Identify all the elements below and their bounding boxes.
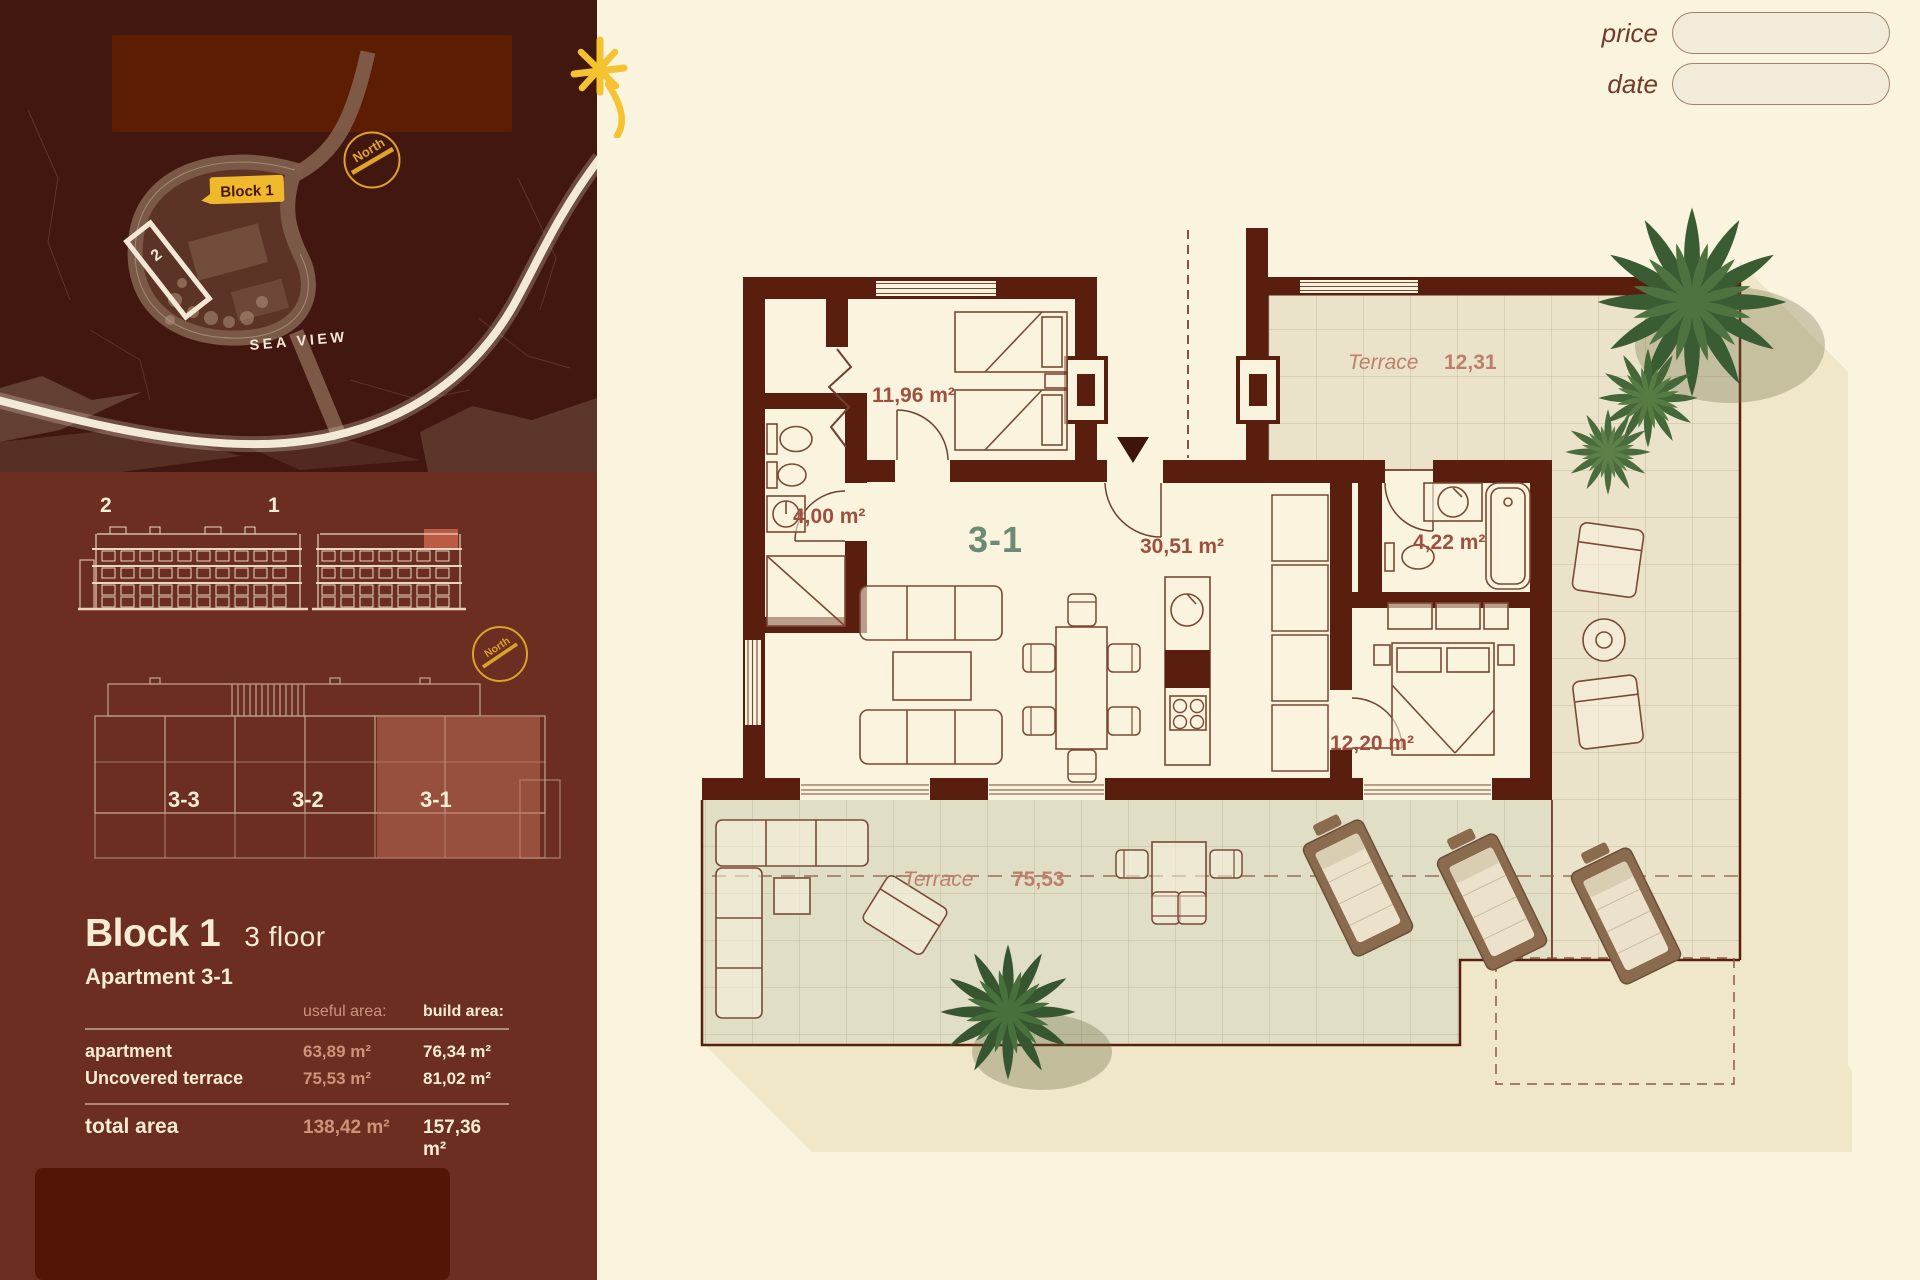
table-row: Uncovered terrace 75,53 m² 81,02 m²: [85, 1065, 509, 1092]
total-row: total area 138,42 m² 157,36 m²: [85, 1103, 509, 1161]
door-bedroom1: [897, 410, 948, 460]
building-2-elevation: [78, 527, 308, 609]
row-name: Uncovered terrace: [85, 1068, 303, 1089]
entrance-arrow-icon: [1117, 437, 1149, 463]
sliding-door: [1364, 781, 1491, 796]
terrace-top-area: 12,31: [1444, 351, 1497, 374]
door-entry: [1105, 483, 1161, 537]
window: [745, 640, 761, 725]
total-name: total area: [85, 1115, 303, 1139]
bedroom2-area-label: 12,20 m²: [1330, 732, 1414, 755]
elevation-left-label: 2: [100, 494, 112, 517]
window: [1300, 280, 1418, 293]
block-1-badge: Block 1: [201, 175, 285, 205]
row-useful-value: 63,89 m²: [303, 1042, 423, 1062]
block-title: Block 1: [85, 912, 220, 956]
row-name: apartment: [85, 1041, 303, 1062]
living-room-furniture: [860, 586, 1140, 782]
logo-placeholder: [112, 35, 512, 132]
bedroom1-area-label: 11,96 m²: [872, 384, 955, 407]
area-table-header: useful area: build area:: [85, 1003, 509, 1028]
sliding-door: [801, 781, 929, 796]
north-compass-overview: North: [473, 627, 527, 681]
living-area-label: 30,51 m²: [1140, 535, 1224, 558]
sidebar: 2 Block 1 North SEA VIEW: [0, 0, 597, 1280]
window: [876, 281, 996, 296]
overview-unit-3-2: 3-2: [292, 787, 324, 812]
total-useful-value: 138,42 m²: [303, 1117, 423, 1139]
row-build-value: 76,34 m²: [423, 1042, 509, 1062]
unit-3-1-highlight: [377, 716, 540, 858]
apartment-info: Block 1 3 floor Apartment 3-1 useful are…: [85, 912, 511, 1161]
block-1-badge-label: Block 1: [220, 182, 274, 201]
title-row: Block 1 3 floor: [85, 912, 511, 956]
unit-number-label: 3-1: [968, 519, 1023, 560]
row-build-value: 81,02 m²: [423, 1069, 509, 1089]
area-table-body: apartment 63,89 m² 76,34 m² Uncovered te…: [85, 1028, 509, 1103]
bedroom1-furniture: [955, 312, 1067, 450]
bathroom2-area-label: 4,22 m²: [1413, 531, 1485, 554]
table-row: apartment 63,89 m² 76,34 m²: [85, 1038, 509, 1065]
decorative-star-icon: [556, 26, 656, 138]
terrace-top-name: Terrace: [1348, 351, 1418, 374]
apartment-label: Apartment 3-1: [85, 964, 511, 990]
useful-area-header: useful area:: [303, 1003, 423, 1021]
elevations-and-overview: 2 1 North: [0, 472, 597, 868]
sliding-door: [989, 781, 1104, 796]
kitchen: [1165, 577, 1210, 765]
overview-unit-3-3: 3-3: [168, 787, 200, 812]
floor-label: 3 floor: [244, 921, 325, 953]
bottom-logo-placeholder: [35, 1168, 450, 1280]
elevation-highlight: [424, 529, 458, 548]
floor-overview: 3-3 3-2 3-1: [95, 678, 560, 858]
overview-unit-3-1: 3-1: [420, 787, 452, 812]
kitchen-counter-block: [1165, 650, 1210, 688]
entry-pillars: [1066, 358, 1278, 422]
row-useful-value: 75,53 m²: [303, 1069, 423, 1089]
building-1-elevation: [312, 529, 466, 609]
floorplan-brochure-page: { "header": { "price_label": "price", "d…: [0, 0, 1920, 1280]
build-area-header: build area:: [423, 1003, 509, 1021]
bathroom1-area-label: 4,00 m²: [793, 505, 865, 528]
terrace-bottom-name: Terrace: [903, 868, 973, 891]
corridor-cabinets: [1272, 495, 1328, 771]
floor-plan: 11,96 m² 4,00 m² 3-1 30,51 m² 4,22 m² 12…: [597, 0, 1920, 1280]
terrace-bottom-area: 75,53: [1012, 868, 1065, 891]
elevation-right-label: 1: [268, 494, 280, 517]
area-table: useful area: build area: apartment 63,89…: [85, 1003, 509, 1161]
total-build-value: 157,36 m²: [423, 1117, 509, 1161]
site-map: 2 Block 1 North SEA VIEW: [0, 0, 597, 472]
